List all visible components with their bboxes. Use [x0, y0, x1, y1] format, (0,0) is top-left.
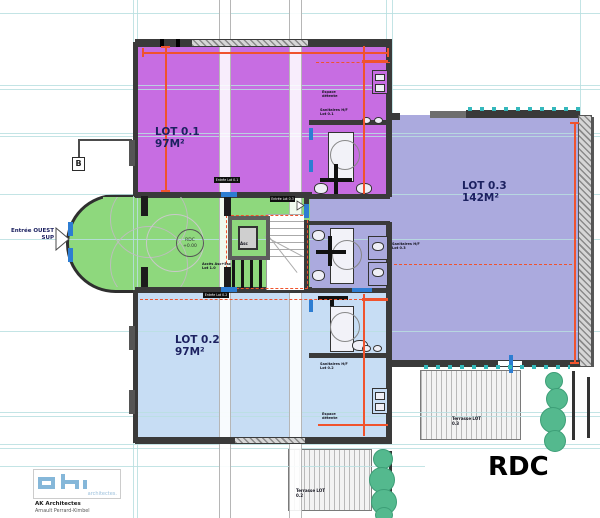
west-entrance-line1: Entrée OUEST: [11, 228, 54, 234]
logo-wordmark-text: architectes.: [88, 491, 117, 497]
cupboard-shelf: [375, 74, 385, 81]
annotation-text: Terrasse LOT 0.3: [452, 416, 481, 426]
dimension-tick: [161, 46, 170, 48]
door-jamb: [224, 196, 231, 216]
window-pier: [129, 326, 135, 350]
firm-name: AK Architectes: [35, 501, 81, 507]
dimension-line: [363, 294, 365, 436]
wc-fixture: [312, 230, 325, 241]
cupboard-shelf: [375, 392, 385, 400]
grid-line: [0, 466, 425, 467]
entry-tag-text: Entrée Lot 0.3: [271, 197, 293, 201]
wall-segment: [309, 353, 390, 358]
level-elevation: +0.00: [183, 244, 197, 249]
dimension-tick: [570, 362, 579, 364]
wall-segment: [592, 117, 594, 367]
logo-wordmark: architectes.: [88, 491, 117, 497]
tree: [544, 430, 566, 452]
lot-area: 97M²: [175, 346, 205, 358]
wc-partition: [328, 236, 332, 266]
dimension-line: [362, 298, 388, 301]
annotation-text: Asc: [240, 241, 248, 246]
wall-segment: [309, 288, 390, 293]
cupboard-shelf: [375, 84, 385, 92]
annotation-espace-detente-lot-0-1: Espace détente: [322, 90, 352, 98]
annotation-text: Sanitaires H/F Lot 0.2: [320, 362, 348, 370]
dimension-line: [574, 122, 576, 364]
curtain-wall-mullions: [424, 365, 570, 369]
insulated-wall-segment: [235, 438, 305, 443]
door-threshold: [352, 288, 372, 292]
grid-line: [392, 0, 393, 115]
wc-partition: [334, 164, 338, 194]
entry-tag-lot-0-1: Entrée Lot 0.1: [214, 177, 240, 183]
annotation-text: Terrasse LOT 0.2: [296, 488, 325, 498]
cupboard-shelf: [375, 403, 385, 411]
dimension-tick: [142, 48, 144, 57]
lot-0-3-entry-corridor: [309, 196, 390, 224]
architect-name-text: Arnault Perrard-Kimbel: [35, 509, 90, 514]
plan-title: RDC: [488, 452, 549, 482]
dimension-line: [142, 52, 388, 54]
dimension-line: [363, 46, 365, 194]
door-threshold: [309, 128, 313, 140]
wall-segment: [309, 221, 390, 225]
tree: [375, 507, 393, 518]
annotation-text: Sanitaires H/F Lot 0.1: [320, 108, 348, 116]
terrace-fence: [587, 377, 590, 438]
architect-name: Arnault Perrard-Kimbel: [35, 509, 90, 514]
section-marker-b: B: [72, 157, 85, 171]
door-threshold: [309, 300, 313, 312]
annotation-sanitaires-lot-0-2: Sanitaires H/F Lot 0.2: [320, 362, 350, 370]
dimension-tick: [161, 190, 170, 192]
annotation-espace-detente-lot-0-2: Espace détente: [322, 412, 352, 420]
level-name: RDC: [185, 238, 195, 243]
lot-0-3-label: LOT 0.3 142M²: [462, 180, 507, 204]
level-marker-circle: RDC +0.00: [176, 229, 204, 257]
door-jamb: [141, 196, 148, 216]
lot-0-2-label: LOT 0.2 97M²: [175, 334, 220, 358]
wc-fixture: [314, 183, 328, 194]
insulated-wall-segment: [192, 40, 308, 46]
section-marker-letter: B: [75, 159, 81, 168]
wall-segment: [133, 290, 138, 443]
wc-fixture: [312, 270, 325, 281]
floor-plan-sheet: LOT 0.1 97M² LOT 0.2 97M² LOT 0.3 142M² …: [0, 0, 600, 518]
tree: [373, 449, 393, 469]
lot-name: LOT 0.3: [462, 180, 507, 192]
terrace-deck-lot-0-3: [420, 370, 521, 440]
annotation-text: Accès Asc+Esc Lot 1.0: [202, 262, 231, 270]
wheelchair-turning-circle: [332, 240, 362, 270]
hall-door-arcs: [103, 197, 310, 287]
wall-tick: [176, 39, 180, 47]
west-entrance-line2: SUP: [42, 235, 54, 241]
plan-title-text: RDC: [488, 452, 549, 482]
terrace-fence: [572, 371, 575, 440]
wheelchair-turning-circle: [330, 312, 360, 342]
section-cut-line: [78, 139, 80, 157]
entry-arrow-icon: [296, 196, 305, 207]
grid-line: [580, 0, 581, 118]
west-entrance-arrow-icon: [55, 227, 71, 251]
dimension-tick: [570, 122, 579, 124]
wc-fixture: [372, 242, 384, 251]
axis-line: [316, 62, 390, 63]
terrace-label-lot-0-3: Terrasse LOT 0.3: [452, 417, 488, 427]
section-cut-line: [78, 139, 132, 141]
entry-tag-lot-0-3: Entrée Lot 0.3: [270, 196, 295, 202]
sink-fixture: [374, 117, 383, 124]
window-pier: [129, 390, 135, 414]
axis-line: [394, 264, 572, 265]
annotation-text: Espace détente: [322, 90, 337, 98]
wall-segment: [466, 110, 580, 118]
annotation-sanitaires-lot-0-1: Sanitaires H/F Lot 0.1: [320, 108, 350, 116]
logo-ak-architectes: architectes.: [33, 469, 121, 499]
dimension-line: [165, 46, 167, 192]
wall-segment: [430, 111, 466, 118]
lot-name: LOT 0.2: [175, 334, 220, 346]
wall-segment: [133, 42, 138, 196]
window-pier: [129, 140, 135, 166]
lot-area: 142M²: [462, 192, 499, 204]
firm-name-text: AK Architectes: [35, 501, 81, 507]
lot-area: 97M²: [155, 138, 185, 150]
west-entrance-label: Entrée OUEST SUP: [2, 228, 54, 241]
entry-tag-lot-0-2: Entrée Lot 0.2: [203, 292, 229, 298]
annotation-text: Sanitaires H/F Lot 0.3: [392, 242, 420, 250]
entry-tag-text: Entrée Lot 0.2: [205, 293, 227, 297]
lot-0-3-area: [390, 115, 578, 367]
door-threshold: [221, 192, 237, 197]
axis-line: [140, 299, 362, 300]
logo-glyphs-icon: [37, 473, 97, 493]
annotation-text: Espace détente: [322, 412, 337, 420]
annotation-ascenseur: Asc: [240, 242, 254, 247]
wc-fixture: [372, 268, 384, 277]
lot-name: LOT 0.1: [155, 126, 200, 138]
wall-segment: [309, 194, 390, 199]
lot-0-1-label: LOT 0.1 97M²: [155, 126, 200, 150]
wall-segment: [388, 113, 400, 120]
entry-tag-text: Entrée Lot 0.1: [216, 178, 238, 182]
terrace-label-lot-0-2: Terrasse LOT 0.2: [296, 489, 332, 499]
adjacent-building-wall: [578, 115, 592, 367]
annotation-sanitaires-lot-0-3: Sanitaires H/F Lot 0.3: [392, 242, 422, 250]
door-threshold: [309, 160, 313, 172]
dimension-line: [318, 424, 388, 426]
curtain-wall-mullions: [468, 107, 580, 111]
door-jamb: [141, 267, 148, 287]
dimension-tick: [387, 48, 389, 57]
sink-fixture: [373, 345, 382, 352]
door-leaf: [509, 355, 513, 373]
annotation-acces-asc: Accès Asc+Esc Lot 1.0: [202, 262, 232, 270]
